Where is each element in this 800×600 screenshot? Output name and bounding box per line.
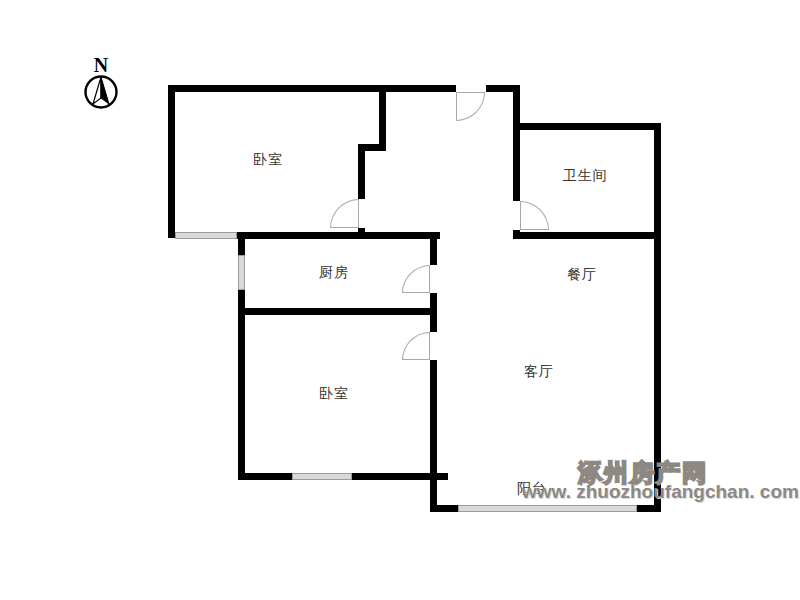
door-arc-kitchen — [402, 265, 430, 293]
wall — [654, 123, 661, 512]
wall — [238, 290, 245, 480]
window — [458, 505, 637, 512]
compass-needle-right — [101, 77, 109, 104]
room-label-living-room: 客厅 — [524, 363, 554, 381]
watermark-site-url: www. zhuozhoufangchan. com — [522, 481, 799, 503]
door-arc-bathroom — [520, 201, 549, 230]
wall — [168, 85, 456, 92]
window — [175, 232, 237, 239]
door-arc-bedroom-top — [330, 199, 359, 228]
room-label-bathroom: 卫生间 — [563, 167, 608, 185]
wall — [238, 232, 245, 255]
wall — [513, 85, 520, 201]
wall — [358, 144, 386, 151]
wall — [358, 228, 365, 239]
door-arc-entry — [456, 92, 485, 121]
wall — [513, 123, 661, 130]
wall — [168, 85, 175, 238]
window — [292, 473, 352, 480]
wall — [245, 308, 430, 315]
room-label-dining-room: 餐厅 — [567, 266, 597, 284]
room-label-bedroom-top: 卧室 — [253, 151, 283, 169]
room-label-kitchen: 厨房 — [319, 264, 349, 282]
room-label-bedroom-bottom: 卧室 — [319, 385, 349, 403]
door-arc-bedroom-bottom — [402, 332, 430, 360]
wall — [379, 92, 386, 151]
compass-needle-left — [93, 77, 101, 104]
wall — [513, 232, 661, 239]
wall — [430, 293, 437, 332]
wall — [237, 232, 440, 239]
compass-north-icon: N — [78, 50, 124, 112]
wall — [437, 505, 458, 512]
wall — [430, 232, 437, 265]
wall — [245, 473, 292, 480]
floor-plan: N 卧室 卫生间 厨房 餐厅 客厅 卧室 阳台 涿州房产网 www. zhuoz… — [0, 0, 800, 600]
wall — [430, 360, 437, 512]
window — [238, 255, 245, 290]
wall — [352, 473, 448, 480]
compass-north-label: N — [94, 54, 109, 76]
wall — [358, 151, 365, 199]
